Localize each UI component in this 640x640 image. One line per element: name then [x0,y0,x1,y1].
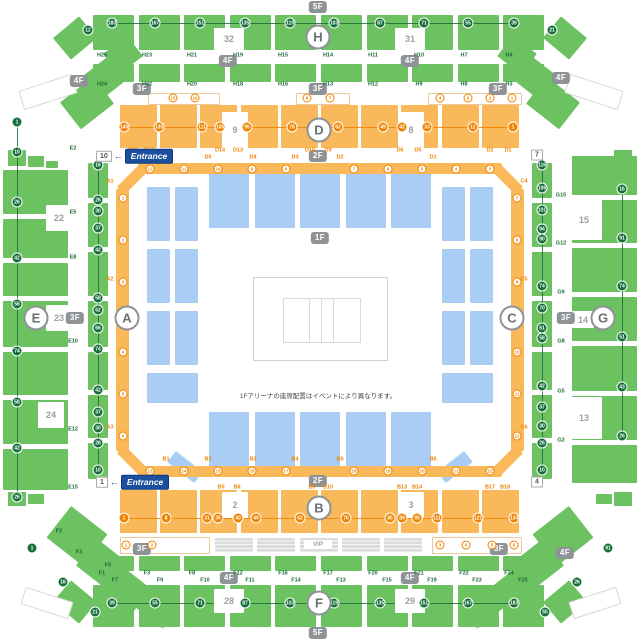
gate-circle[interactable]: 1 [12,117,23,128]
standing-position-circle[interactable]: 3 [436,541,445,550]
standing-position-circle[interactable]: 5 [119,390,128,399]
gate-circle[interactable]: 91 [603,543,614,554]
standing-position-circle[interactable]: 9 [513,278,522,287]
entrance[interactable]: 10←Entrance [96,149,173,164]
section-label: F15 [382,578,391,584]
gate-circle[interactable]: 71 [419,18,430,29]
section-label: D13 [233,148,243,154]
section-label: B1 [162,457,169,463]
gate-circle[interactable]: 42 [537,381,548,392]
section-label: D5 [204,155,211,161]
section-label: H22 [142,82,152,88]
seat-block[interactable] [442,311,465,365]
seat-block[interactable] [572,346,637,391]
seat-block[interactable] [257,538,295,552]
gate-circle-orange[interactable]: 111 [197,122,208,133]
seat-block[interactable] [230,64,271,82]
seat-block[interactable] [147,373,198,403]
gate-circle[interactable]: 10 [12,147,23,158]
gate-circle[interactable]: 167 [463,598,474,609]
standing-ring-segment[interactable] [117,164,147,194]
standing-position-circle[interactable]: 12 [146,165,155,174]
gate-circle[interactable]: 119 [285,18,296,29]
seat-block[interactable] [175,187,198,241]
gate-circle[interactable]: 30 [93,423,104,434]
section-letter: C [500,306,525,331]
standing-position-circle[interactable]: 17 [282,467,291,476]
block-number-inset: 22 [46,205,72,231]
gate-circle[interactable]: 183 [509,598,520,609]
gate-circle[interactable]: 37 [537,402,548,413]
standing-ring-segment[interactable] [138,163,502,174]
seat-block[interactable] [147,311,170,365]
gate-circle-orange[interactable]: 134 [509,513,520,524]
standing-position-circle[interactable]: 8 [303,94,312,103]
section-label: B17 [485,485,495,491]
seat-block[interactable] [342,538,380,552]
seat-block[interactable] [215,538,253,552]
standing-position-circle[interactable]: 18 [350,467,359,476]
seat-block[interactable] [175,311,198,365]
gate-circle[interactable]: 39 [509,18,520,29]
gate-circle[interactable]: 90 [537,234,548,245]
seat-block[interactable] [28,156,44,167]
gate-circle[interactable]: 58 [12,299,23,310]
standing-position-circle[interactable]: 15 [214,467,223,476]
gate-circle-orange[interactable]: 111 [432,513,443,524]
floor-tag: 4F [552,72,570,84]
gate-circle[interactable]: 103 [329,18,340,29]
section-label: B14 [412,485,422,491]
section-label: D1 [504,148,511,154]
standing-position-circle[interactable]: 7 [513,194,522,203]
standing-position-circle[interactable]: 7 [350,165,359,174]
gate-circle-orange[interactable]: 62 [295,513,306,524]
gate-circle[interactable]: 135 [375,598,386,609]
gate-circle[interactable]: 58 [93,293,104,304]
gate-circle[interactable]: 74 [617,281,628,292]
seat-block[interactable] [367,556,408,571]
gate-circle[interactable]: 74 [537,281,548,292]
standing-position-circle[interactable]: 4 [436,94,445,103]
seat-block[interactable] [442,187,465,241]
standing-ring-segment[interactable] [493,445,523,475]
gate-circle-orange[interactable]: 70 [341,513,352,524]
section-label: F22 [459,571,468,577]
section-label: F14 [291,578,300,584]
gate-circle-orange[interactable]: 89 [397,513,408,524]
block-number-inset: 31 [395,28,425,50]
section-label: A1 [106,179,113,185]
court-inner [283,298,361,343]
gate-circle[interactable]: 55 [463,18,474,29]
seat-block[interactable] [3,263,68,296]
gate-circle[interactable]: 62 [93,305,104,316]
standing-position-circle[interactable]: 6 [510,541,519,550]
standing-position-circle[interactable]: 1 [508,94,517,103]
gate-circle[interactable]: 42 [93,245,104,256]
seat-block[interactable] [300,173,340,228]
gate-circle-orange[interactable]: 146 [119,122,130,133]
entrance-gate-number: 1 [96,477,108,488]
gate-circle-orange[interactable]: 35 [213,513,224,524]
standing-position-circle[interactable]: 1 [119,194,128,203]
standing-block-outline[interactable] [432,537,522,554]
gate-circle-orange[interactable]: 42 [397,122,408,133]
section-label: F25 [518,578,527,584]
section-label: D3 [291,155,298,161]
seat-block[interactable] [614,150,632,166]
gate-circle[interactable]: 87 [240,598,251,609]
seat-block[interactable] [147,249,170,303]
gate-circle[interactable]: 106 [537,183,548,194]
section-label: F11 [245,578,254,584]
seat-block[interactable] [184,556,225,571]
seat-block[interactable] [391,173,431,228]
gate-circle[interactable]: 21 [90,607,101,618]
section-letter: H [306,25,331,50]
section-label: G5 [557,389,564,395]
seat-block[interactable] [458,64,499,82]
section-label: F20 [368,571,377,577]
seat-block[interactable] [230,556,271,571]
gate-circle[interactable]: 58 [12,397,23,408]
section-label: B5 [336,457,343,463]
entrance-gate-number: 10 [96,151,112,162]
standing-position-circle[interactable]: 16 [248,467,257,476]
gate-circle-orange[interactable]: 76 [287,122,298,133]
section-label: B6 [233,485,240,491]
gate-circle-orange[interactable]: 105 [215,122,226,133]
section-label: F1 [99,571,105,577]
standing-position-circle[interactable]: 10 [513,348,522,357]
floor-note: 1Fアリーナの座席配置はイベントにより異なります。 [240,390,396,400]
gate-circle[interactable]: 116 [537,160,548,171]
gate-circle-orange[interactable]: 49 [251,513,262,524]
section-label: G9 [557,290,564,296]
entrance[interactable]: 1←Entrance [96,475,169,490]
standing-position-circle[interactable]: 9 [248,165,257,174]
seat-block[interactable] [209,412,249,467]
seat-block[interactable] [361,490,398,533]
floor-tag: 3F [557,312,575,324]
standing-block-outline[interactable] [148,93,220,105]
section-label: E8 [70,255,77,261]
section-label: H11 [368,53,378,59]
standing-position-circle[interactable]: 19 [384,467,393,476]
gate-circle[interactable]: 42 [93,385,104,396]
standing-position-circle[interactable]: 5 [488,541,497,550]
gate-circle-orange[interactable]: 85 [385,513,396,524]
gate-circle-orange[interactable]: 1 [119,513,130,524]
seat-block[interactable] [46,161,58,168]
gate-circle[interactable]: 151 [195,18,206,29]
standing-position-circle[interactable]: 14 [180,467,189,476]
gate-circle[interactable]: 151 [419,598,430,609]
seat-block[interactable] [458,556,499,571]
gate-circle-orange[interactable]: 40 [233,513,244,524]
court-line [321,299,322,342]
gate-circle[interactable]: 37 [93,223,104,234]
seat-block[interactable] [470,249,493,303]
seat-block[interactable] [482,490,519,533]
aisle-guide-line [622,189,623,436]
gate-circle-orange[interactable]: 33 [422,122,433,133]
gate-circle[interactable]: 66 [93,323,104,334]
gate-circle[interactable]: 26 [537,438,548,449]
seat-block[interactable] [300,412,340,467]
seat-block[interactable] [346,412,386,467]
section-label: C4 [520,179,527,185]
seat-block[interactable] [470,187,493,241]
section-label: G8 [557,339,564,345]
section-label: E12 [68,427,78,433]
gate-circle[interactable]: 42 [12,443,23,454]
section-label: B3 [249,457,256,463]
gate-circle-orange[interactable]: 121 [473,513,484,524]
seat-block[interactable] [391,412,431,467]
gate-circle-orange[interactable]: 95 [412,513,423,524]
standing-position-circle[interactable]: 7 [326,94,335,103]
gate-circle[interactable]: 26 [572,577,583,588]
seat-block[interactable] [139,64,180,82]
standing-position-circle[interactable]: 8 [513,236,522,245]
seat-block[interactable] [175,249,198,303]
seat-block[interactable] [384,538,422,552]
seat-block[interactable] [614,492,632,506]
section-label: E5 [70,210,77,216]
gate-circle[interactable]: 167 [150,18,161,29]
seat-block[interactable] [321,556,362,571]
standing-ring-segment[interactable] [117,445,147,475]
gate-circle[interactable]: 1 [27,543,38,554]
seat-block[interactable] [412,556,453,571]
seat-block[interactable] [346,173,386,228]
gate-circle[interactable]: 26 [12,197,23,208]
standing-position-circle[interactable]: 11 [513,390,522,399]
floor-tag: 3F [66,312,84,324]
section-label: F8 [189,571,195,577]
seat-block[interactable] [53,16,97,59]
seat-block[interactable] [209,173,249,228]
gate-circle-orange[interactable]: 95 [242,122,253,133]
gate-circle-orange[interactable]: 1 [508,122,519,133]
gate-circle[interactable]: 26 [12,492,23,503]
standing-position-circle[interactable]: 10 [214,165,223,174]
gate-circle[interactable]: 55 [540,607,551,618]
floor-tag: 4F [70,75,88,87]
standing-position-circle[interactable]: 3 [119,278,128,287]
standing-position-circle[interactable]: 4 [452,165,461,174]
standing-position-circle[interactable]: 20 [418,467,427,476]
seat-block[interactable] [442,373,493,403]
seat-block[interactable] [28,494,44,504]
section-label: F3 [76,550,82,556]
gate-circle[interactable]: 43 [617,382,628,393]
gate-circle[interactable]: 10 [537,465,548,476]
standing-position-circle[interactable]: 12 [513,432,522,441]
section-label: D2 [486,148,493,154]
seat-block[interactable] [147,187,170,241]
floor-tag: 4F [556,547,574,559]
seat-block[interactable] [442,490,479,533]
gate-circle[interactable]: 16 [617,184,628,195]
gate-circle[interactable]: 12 [83,25,94,36]
standing-position-circle[interactable]: 6 [119,432,128,441]
section-label: H7 [460,53,467,59]
seat-block[interactable] [596,494,612,504]
standing-position-circle[interactable]: 16 [191,94,200,103]
gate-circle[interactable]: 103 [285,598,296,609]
gate-circle[interactable]: 26 [93,195,104,206]
section-label: G15 [556,193,566,199]
standing-position-circle[interactable]: 2 [486,94,495,103]
standing-position-circle[interactable]: 8 [282,165,291,174]
section-label: E10 [68,339,78,345]
seat-block[interactable] [321,64,362,82]
section-label: H12 [368,82,378,88]
section-label: B10 [323,485,333,491]
section-label: D9 [324,148,331,154]
seat-block[interactable] [596,156,612,167]
section-letter: A [115,306,140,331]
section-label: F7 [112,578,118,584]
gate-circle-orange[interactable]: 8 [161,513,172,524]
seat-block[interactable] [572,445,637,483]
section-label: B9 [308,485,315,491]
seat-block[interactable] [255,173,295,228]
gate-circle[interactable]: 74 [93,344,104,355]
gate-circle[interactable]: 16 [58,577,69,588]
standing-position-circle[interactable]: 5 [418,165,427,174]
seat-block[interactable] [275,64,316,82]
section-label: A2 [106,277,113,283]
gate-circle[interactable]: 183 [107,18,118,29]
seat-block[interactable] [160,490,197,533]
gate-circle[interactable]: 30 [537,421,548,432]
court-line [309,299,310,342]
gate-circle[interactable]: 51 [617,332,628,343]
section-label: D10 [305,148,315,154]
section-label: H4 [505,53,512,59]
standing-position-circle[interactable]: 2 [148,541,157,550]
seat-block[interactable] [582,161,594,168]
gate-circle[interactable]: 30 [93,206,104,217]
section-label: D6 [396,148,403,154]
gate-circle[interactable]: 70 [537,303,548,314]
section-label: H13 [323,82,333,88]
section-label: H14 [323,53,333,59]
standing-position-circle[interactable]: 6 [384,165,393,174]
section-label: H25 [97,53,107,59]
entrance-tag: Entrance [125,149,173,164]
section-label: F19 [427,578,436,584]
section-label: F5 [105,563,111,569]
section-label: H10 [414,53,424,59]
section-letter: G [591,306,616,331]
gate-circle[interactable]: 74 [12,346,23,357]
gate-circle[interactable]: 91 [617,233,628,244]
seat-block[interactable] [367,64,408,82]
seat-block[interactable] [470,311,493,365]
gate-circle[interactable]: 37 [93,407,104,418]
standing-position-circle[interactable]: 3 [464,94,473,103]
gate-circle[interactable]: 26 [617,431,628,442]
standing-position-circle[interactable]: 22 [486,467,495,476]
gate-circle[interactable]: 39 [107,598,118,609]
gate-circle-orange[interactable]: 12 [468,122,479,133]
section-label: E2 [70,146,77,152]
seat-block[interactable] [3,352,68,395]
standing-position-circle[interactable]: 1 [122,541,131,550]
seat-block[interactable] [184,64,225,82]
aisle-guide-line [17,122,18,497]
gate-circle[interactable]: 26 [93,438,104,449]
aisle-guide-line [112,23,514,24]
section-label: D5 [414,148,421,154]
gate-circle-orange[interactable]: 62 [333,122,344,133]
standing-position-circle[interactable]: 11 [180,165,189,174]
section-label: F16 [278,571,287,577]
seat-block[interactable] [543,16,587,59]
standing-ring-segment[interactable] [493,164,523,194]
gate-circle[interactable]: 101 [537,205,548,216]
section-label: D4 [249,155,256,161]
section-label: F3 [144,571,150,577]
standing-position-circle[interactable]: 2 [119,236,128,245]
gate-circle[interactable]: 135 [240,18,251,29]
section-label: A3 [106,425,113,431]
section-label: G12 [556,241,566,247]
floor-tag: 5F [309,1,327,13]
section-label: F10 [200,578,209,584]
seat-block[interactable] [255,412,295,467]
seat-block[interactable] [139,556,180,571]
gate-circle-orange[interactable]: 31 [202,513,213,524]
gate-circle-orange[interactable]: 49 [378,122,389,133]
section-label: C5 [520,277,527,283]
court-line [333,299,334,342]
seat-block[interactable] [275,556,316,571]
section-label: F12 [233,571,242,577]
gate-circle[interactable]: 21 [547,25,558,36]
gate-circle[interactable]: 58 [537,333,548,344]
gate-circle-orange[interactable]: 135 [154,122,165,133]
standing-position-circle[interactable]: 21 [452,467,461,476]
gate-circle[interactable]: 42 [12,253,23,264]
seat-block[interactable] [120,490,157,533]
gate-number-box: 4 [531,477,543,488]
section-label: F21 [414,571,423,577]
entrance-arrow-icon: ← [114,152,123,161]
standing-position-circle[interactable]: 15 [169,94,178,103]
section-label: F24 [504,571,513,577]
seat-block[interactable] [3,449,68,490]
standing-position-circle[interactable]: 4 [119,348,128,357]
section-label: D1 [429,155,436,161]
section-label: H19 [233,53,243,59]
gate-circle[interactable]: 71 [195,598,206,609]
gate-circle[interactable]: 55 [150,598,161,609]
section-label: H18 [233,82,243,88]
seat-block[interactable] [442,249,465,303]
seat-block[interactable] [412,64,453,82]
standing-position-circle[interactable]: 4 [462,541,471,550]
standing-position-circle[interactable]: 3 [486,165,495,174]
section-label: H20 [187,82,197,88]
gate-circle[interactable]: 87 [375,18,386,29]
section-label: H3 [505,82,512,88]
